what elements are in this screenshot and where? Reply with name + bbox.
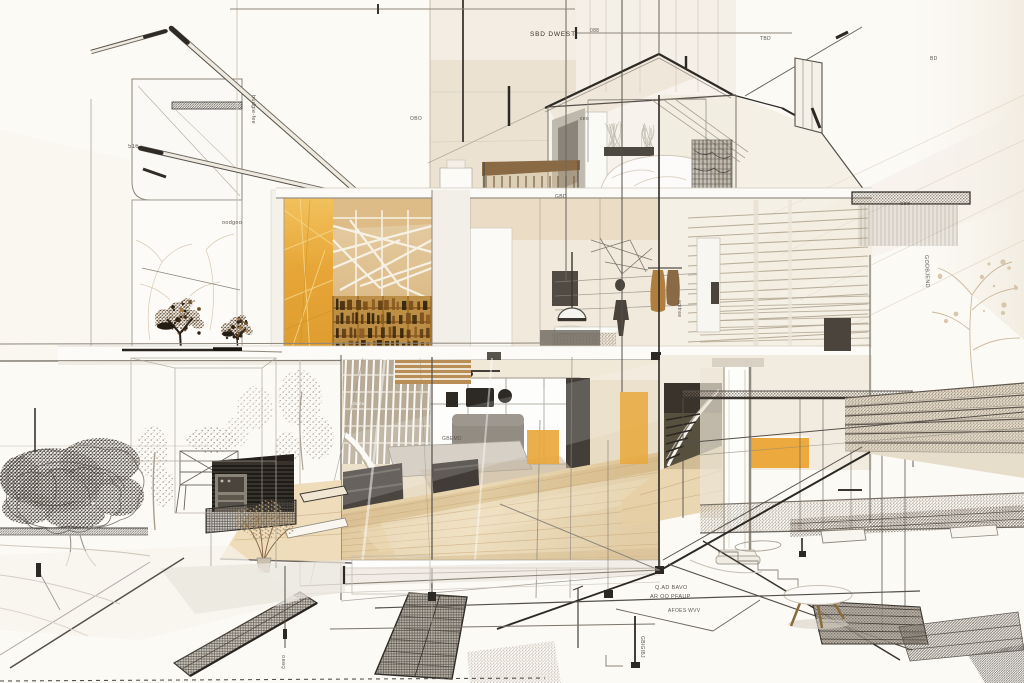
svg-text:088: 088 bbox=[590, 28, 599, 34]
svg-text:GBBQ: GBBQ bbox=[281, 655, 286, 669]
svg-text:agitree: agitree bbox=[676, 300, 682, 317]
svg-text:doble: doble bbox=[352, 401, 365, 406]
svg-text:GBD: GBD bbox=[900, 201, 911, 206]
svg-text:oodgoo: oodgoo bbox=[222, 220, 242, 226]
svg-text:GBEMD: GBEMD bbox=[442, 436, 462, 442]
svg-text:OBO: OBO bbox=[410, 116, 422, 122]
svg-text:budgie-fee: budgie-fee bbox=[250, 95, 256, 124]
svg-text:TBD: TBD bbox=[760, 36, 771, 42]
svg-text:516: 516 bbox=[128, 144, 139, 150]
svg-text:GODBJEND: GODBJEND bbox=[923, 255, 930, 288]
svg-text:AFOES WVV: AFOES WVV bbox=[668, 608, 701, 614]
svg-text:AR OQ PFAUP: AR OQ PFAUP bbox=[650, 594, 691, 600]
svg-text:ceo: ceo bbox=[580, 116, 589, 122]
svg-text:SBD DWEST: SBD DWEST bbox=[530, 31, 576, 38]
svg-text:GBIGIBJ: GBIGIBJ bbox=[639, 636, 645, 658]
svg-text:BD: BD bbox=[930, 56, 938, 62]
svg-text:Q.AD BAVO: Q.AD BAVO bbox=[655, 585, 688, 591]
svg-text:GBD: GBD bbox=[555, 194, 567, 200]
